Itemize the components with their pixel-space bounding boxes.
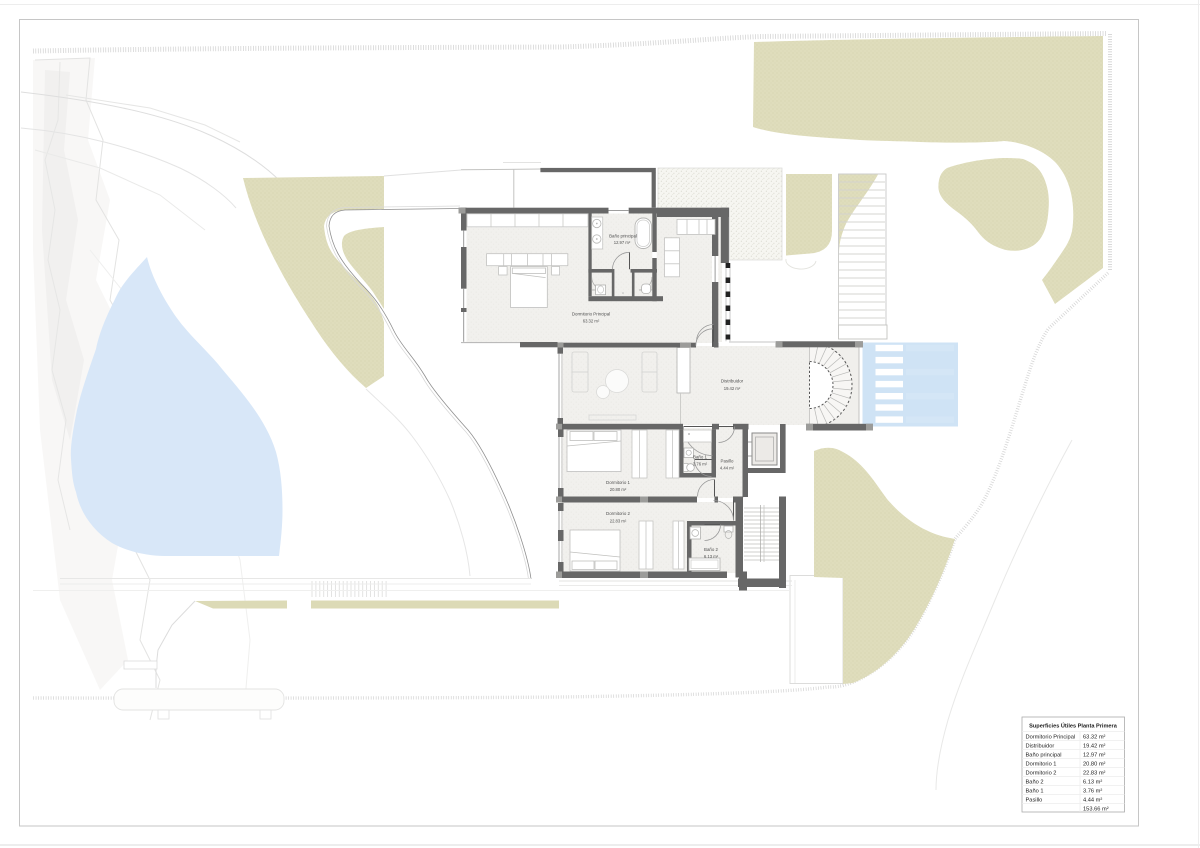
svg-text:63.32 m²: 63.32 m² (583, 319, 600, 324)
svg-text:Distribuidor: Distribuidor (721, 379, 744, 384)
svg-text:4.44 m²: 4.44 m² (720, 466, 735, 471)
svg-text:3.76 m²: 3.76 m² (1083, 789, 1102, 795)
svg-text:Baño 2: Baño 2 (1026, 780, 1044, 786)
svg-text:4.44 m²: 4.44 m² (1083, 798, 1102, 804)
svg-text:19.42 m²: 19.42 m² (1083, 744, 1106, 750)
svg-text:19.42 m²: 19.42 m² (724, 386, 741, 391)
svg-text:63.32 m²: 63.32 m² (1083, 735, 1106, 741)
svg-text:Superficies Útiles Planta Prim: Superficies Útiles Planta Primera (1029, 723, 1118, 730)
svg-text:22.83 m²: 22.83 m² (1083, 771, 1106, 777)
svg-text:Distribuidor: Distribuidor (1026, 744, 1055, 750)
svg-text:Baño principal: Baño principal (1026, 753, 1062, 759)
svg-text:153.66 m²: 153.66 m² (1083, 807, 1109, 813)
svg-text:Dormitorio 2: Dormitorio 2 (606, 511, 630, 516)
svg-text:3.76 m²: 3.76 m² (693, 462, 708, 467)
svg-text:Dormitorio Principal: Dormitorio Principal (1026, 735, 1076, 741)
svg-text:Pasillo: Pasillo (721, 459, 734, 464)
svg-text:Pasillo: Pasillo (1026, 798, 1043, 804)
svg-text:12.97 m²: 12.97 m² (1083, 753, 1106, 759)
svg-text:Dormitorio 2: Dormitorio 2 (1026, 771, 1057, 777)
svg-text:Dormitorio 1: Dormitorio 1 (606, 480, 630, 485)
svg-text:6.13 m²: 6.13 m² (1083, 780, 1102, 786)
svg-text:20.80 m²: 20.80 m² (1083, 762, 1106, 768)
svg-text:22.83 m²: 22.83 m² (610, 519, 627, 524)
svg-text:Dormitorio Principal: Dormitorio Principal (572, 312, 610, 317)
svg-text:6.13 m²: 6.13 m² (704, 554, 719, 559)
svg-text:20.80 m²: 20.80 m² (610, 487, 627, 492)
svg-text:Dormitorio 1: Dormitorio 1 (1026, 762, 1057, 768)
svg-text:Baño 1: Baño 1 (693, 455, 707, 460)
svg-text:Baño principal: Baño principal (609, 234, 637, 239)
svg-text:12.97 m²: 12.97 m² (614, 240, 631, 245)
svg-text:Baño 2: Baño 2 (704, 547, 718, 552)
svg-text:Baño 1: Baño 1 (1026, 789, 1044, 795)
